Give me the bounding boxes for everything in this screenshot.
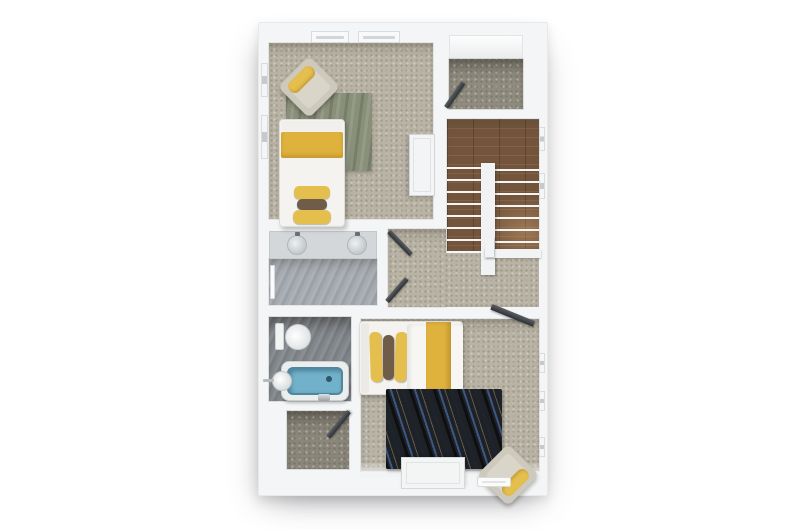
window-sill-bedroom-1-b — [539, 391, 545, 411]
pillow-brown — [383, 335, 394, 380]
bed-runner — [426, 322, 451, 398]
chest-of-drawers — [401, 457, 465, 489]
pillow-yellow — [369, 332, 383, 382]
wardrobe — [409, 134, 435, 196]
canvas — [0, 0, 800, 530]
bathtub-drain — [326, 376, 332, 382]
pillow-yellow — [394, 332, 408, 382]
floor-plan — [258, 22, 548, 496]
window-sill-left-2 — [261, 115, 268, 159]
toilet-bowl — [285, 324, 311, 350]
floor-vent — [477, 477, 511, 487]
window-sill-bedroom-1-a — [539, 353, 545, 373]
double-bed — [359, 321, 463, 395]
stair-railing-return — [485, 237, 494, 257]
pillow-yellow — [294, 186, 330, 199]
bathtub-taps — [318, 394, 330, 401]
window-sill-stairs-2 — [539, 173, 545, 199]
window-sill-top-2 — [358, 31, 400, 43]
pillow-brown — [297, 199, 327, 210]
room-ensuite-floor — [269, 259, 377, 305]
vanity-sink-right — [347, 235, 367, 255]
towel-rail — [270, 265, 275, 299]
toilet-cistern — [275, 323, 284, 350]
stair-treads-right-flight — [495, 169, 539, 253]
bathtub-basin — [287, 367, 343, 395]
window-sill-left-1 — [261, 63, 268, 97]
window-sill-stairs-1 — [539, 127, 545, 151]
single-bed — [279, 119, 345, 227]
bed-runner — [281, 132, 343, 158]
store-room-wall-face — [449, 35, 523, 61]
window-sill-bedroom-1-c — [539, 437, 545, 457]
window-sill-top-1 — [311, 31, 349, 43]
bed-footboard — [282, 121, 342, 131]
pillow-yellow — [293, 210, 331, 224]
tile-texture — [269, 259, 377, 305]
bed-headboard — [361, 323, 369, 393]
stair-treads-left-flight — [447, 167, 481, 253]
basin-tap — [263, 379, 274, 382]
vanity-sink-left — [287, 235, 307, 255]
wall-basin — [272, 371, 292, 391]
stair-spine-wall — [481, 163, 495, 275]
